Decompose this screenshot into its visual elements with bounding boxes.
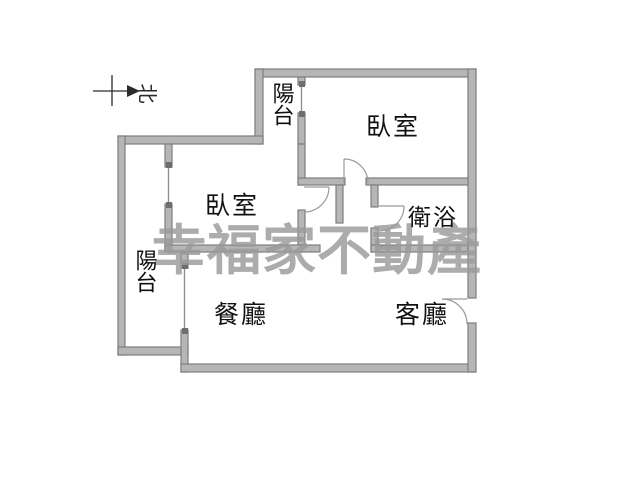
- wall-balcony-bottom: [118, 347, 188, 355]
- wall-top-upper: [255, 69, 476, 77]
- wall-left-outer: [118, 136, 125, 355]
- wall-main-top: [118, 136, 263, 144]
- wall-hall-north-b: [366, 178, 468, 185]
- room-label-bathroom: 衛浴: [408, 206, 458, 230]
- north-compass-icon: [93, 75, 140, 106]
- wall-hall-north-a: [298, 178, 345, 185]
- wall-balcony-divider-stub-bottom: [298, 113, 305, 144]
- wall-upper-balcony-west: [255, 69, 263, 144]
- wall-main-bottom: [181, 364, 475, 372]
- door-bedroom-main-arc: [344, 159, 368, 183]
- room-label-living: 客廳: [395, 302, 449, 328]
- wall-right-outer-bottom: [468, 323, 476, 372]
- room-label-balcony-left: 陽台: [132, 249, 155, 293]
- room-label-bedroom-second: 臥室: [205, 193, 259, 219]
- north-label: 北: [135, 84, 164, 104]
- wall-bathroom-west-stub-top: [371, 185, 378, 207]
- room-label-balcony-top: 陽台: [269, 82, 292, 126]
- floor-plan: 北 幸福家不動產 陽台 臥室 臥室 陽台 衛浴 餐廳 客廳: [0, 0, 640, 480]
- room-label-dining: 餐廳: [214, 302, 268, 328]
- room-label-bedroom-main: 臥室: [366, 114, 420, 140]
